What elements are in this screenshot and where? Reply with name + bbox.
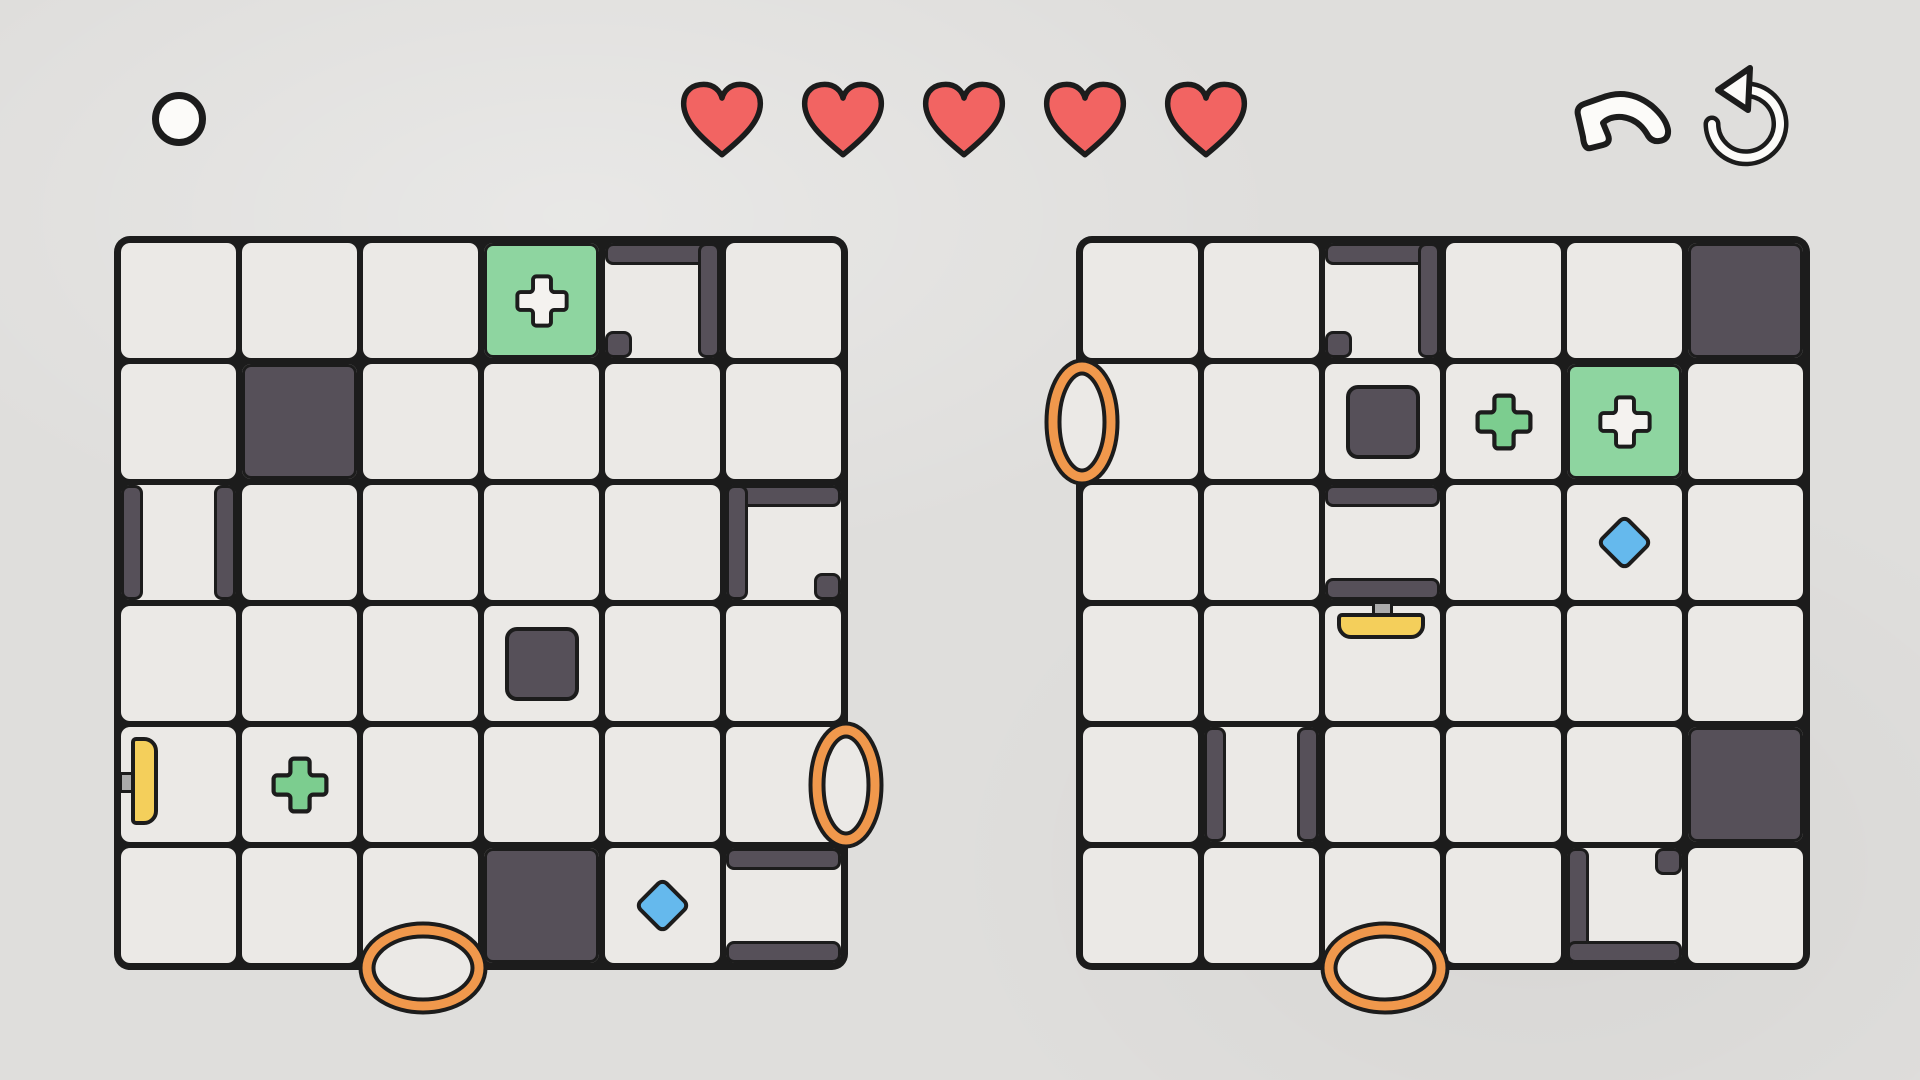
- left-board[interactable]: [114, 236, 848, 970]
- grid-cell: [1204, 485, 1319, 600]
- wall-segment: [1567, 941, 1682, 963]
- heart-icon: [1039, 78, 1131, 162]
- grid-cell: [1446, 243, 1561, 358]
- solid-cell: [1688, 243, 1803, 358]
- grid-cell: [363, 727, 478, 842]
- paddle: [131, 737, 158, 825]
- grid-cell: [1567, 606, 1682, 721]
- grid-cell: [1446, 727, 1561, 842]
- wall-segment: [726, 485, 748, 600]
- heart-icon: [918, 78, 1010, 162]
- grid-cell: [605, 606, 720, 721]
- grid-cell: [484, 727, 599, 842]
- grid-cell: [1204, 606, 1319, 721]
- grid-cell: [121, 243, 236, 358]
- wall-segment: [726, 941, 841, 963]
- grid-cell: [1083, 485, 1198, 600]
- wall-nub: [814, 573, 841, 600]
- grid-cell: [1567, 727, 1682, 842]
- grid-cell: [363, 606, 478, 721]
- wall-segment: [1325, 578, 1440, 600]
- grid-cell: [1446, 848, 1561, 963]
- grid-cell: [1446, 606, 1561, 721]
- grid-cell: [1083, 606, 1198, 721]
- heart-icon: [797, 78, 889, 162]
- restart-arrow-icon: [1712, 68, 1780, 158]
- grid-cell: [484, 364, 599, 479]
- heart-icon: [1160, 78, 1252, 162]
- grid-cell: [1204, 243, 1319, 358]
- wall-segment: [214, 485, 236, 600]
- wall-nub: [1325, 331, 1352, 358]
- heart-icon: [676, 78, 768, 162]
- grid-cell: [605, 727, 720, 842]
- game-screen: [0, 0, 1920, 1080]
- left-board-content: [118, 240, 844, 966]
- grid-cell: [726, 243, 841, 358]
- wall-segment: [698, 243, 720, 358]
- grid-cell: [363, 364, 478, 479]
- wall-segment: [1418, 243, 1440, 358]
- lives-bar: [676, 78, 1252, 162]
- grid-cell: [1083, 727, 1198, 842]
- solid-cell: [484, 848, 599, 963]
- portal-ring: [1036, 350, 1128, 494]
- right-board[interactable]: [1076, 236, 1810, 970]
- portal-ring: [351, 915, 495, 1021]
- grid-cell: [1688, 848, 1803, 963]
- undo-button[interactable]: [1572, 88, 1676, 156]
- grid-cell: [1688, 364, 1803, 479]
- wall-segment: [1325, 485, 1440, 507]
- grid-cell: [1204, 364, 1319, 479]
- push-block[interactable]: [505, 627, 579, 701]
- portal-ring: [1313, 915, 1457, 1021]
- grid-cell: [242, 848, 357, 963]
- restart-button[interactable]: [1694, 60, 1798, 168]
- grid-cell: [1446, 485, 1561, 600]
- grid-cell: [1083, 243, 1198, 358]
- grid-cell: [1325, 727, 1440, 842]
- grid-cell: [363, 243, 478, 358]
- goal-plus-icon: [1597, 394, 1653, 450]
- grid-cell: [121, 848, 236, 963]
- grid-cell: [363, 485, 478, 600]
- right-board-content: [1080, 240, 1806, 966]
- wall-segment: [121, 485, 143, 600]
- wall-segment: [1297, 727, 1319, 842]
- grid-cell: [726, 364, 841, 479]
- grid-cell: [121, 606, 236, 721]
- wall-segment: [1204, 727, 1226, 842]
- grid-cell: [121, 364, 236, 479]
- push-block[interactable]: [1346, 385, 1420, 459]
- grid-cell: [242, 606, 357, 721]
- grid-cell: [1567, 243, 1682, 358]
- grid-cell: [726, 606, 841, 721]
- undo-arrow-icon: [1578, 94, 1668, 148]
- paddle: [1337, 613, 1425, 639]
- grid-cell: [1688, 606, 1803, 721]
- white-circle-indicator: [152, 92, 206, 146]
- goal-plus-icon: [514, 273, 570, 329]
- solid-cell: [242, 364, 357, 479]
- health-plus-pickup: [270, 755, 330, 815]
- wall-nub: [605, 331, 632, 358]
- grid-cell: [605, 485, 720, 600]
- grid-cell: [242, 485, 357, 600]
- grid-cell: [242, 243, 357, 358]
- goal-cell: [484, 243, 599, 358]
- grid-cell: [1204, 848, 1319, 963]
- grid-cell: [484, 485, 599, 600]
- portal-ring: [800, 713, 892, 857]
- health-plus-pickup: [1474, 392, 1534, 452]
- grid-cell: [1083, 848, 1198, 963]
- goal-cell: [1567, 364, 1682, 479]
- wall-nub: [1655, 848, 1682, 875]
- grid-cell: [1688, 485, 1803, 600]
- solid-cell: [1688, 727, 1803, 842]
- grid-cell: [605, 364, 720, 479]
